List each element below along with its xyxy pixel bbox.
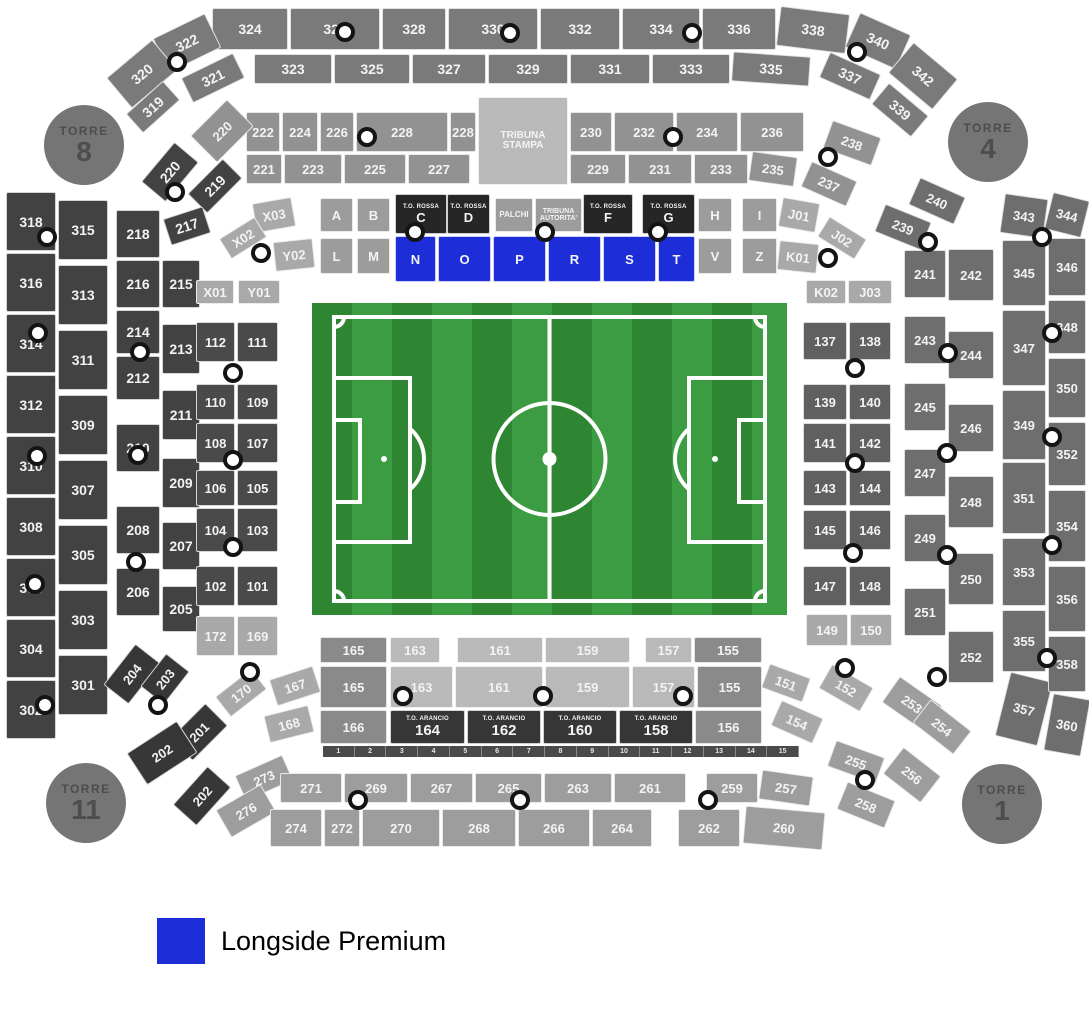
- section-152-label: 152: [833, 677, 858, 699]
- section-246-label: 246: [960, 422, 982, 435]
- section-357: 357: [995, 672, 1054, 747]
- section-314: 314: [6, 314, 56, 373]
- gate-marker: [251, 243, 271, 263]
- section-t[interactable]: T: [658, 236, 695, 282]
- section-270: 270: [362, 809, 440, 847]
- section-358-label: 358: [1056, 658, 1078, 671]
- section-254-label: 254: [929, 715, 954, 739]
- section-155-2-label: 155: [719, 681, 741, 694]
- torre-1-number: 1: [994, 797, 1010, 825]
- section-o[interactable]: O: [438, 236, 491, 282]
- gate-marker: [648, 222, 668, 242]
- row-number-cell: 13: [704, 746, 736, 757]
- row-number-cell: 5: [450, 746, 482, 757]
- section-139-label: 139: [814, 396, 836, 409]
- section-230-label: 230: [580, 126, 602, 139]
- section-339-label: 339: [887, 97, 914, 123]
- section-355-label: 355: [1013, 635, 1035, 648]
- section-261: 261: [614, 773, 686, 803]
- section-145: 145: [803, 510, 847, 550]
- section-162: T.O. ARANCIO162: [467, 710, 541, 744]
- section-h: H: [698, 198, 732, 232]
- section-259-label: 259: [721, 782, 743, 795]
- section-169: 169: [237, 616, 278, 656]
- section-235: 235: [748, 151, 798, 187]
- section-f: T.O. ROSSAF: [583, 194, 633, 234]
- section-209: 209: [162, 458, 200, 508]
- section-360-label: 360: [1055, 717, 1079, 734]
- section-155-2: 155: [697, 666, 762, 708]
- section-212-label: 212: [126, 371, 149, 385]
- section-219-label: 219: [202, 173, 228, 199]
- section-161-label: 161: [489, 644, 511, 657]
- section-157-2-label: 157: [653, 681, 675, 694]
- section-338: 338: [776, 6, 850, 54]
- section-220-label: 220: [210, 119, 235, 144]
- legend: Longside Premium: [157, 918, 446, 964]
- gate-marker: [937, 443, 957, 463]
- section-207: 207: [162, 522, 200, 570]
- section-221-label: 221: [253, 163, 275, 176]
- row-number-cell: 2: [355, 746, 387, 757]
- section-202-label: 202: [149, 742, 174, 765]
- row-number-cell: 12: [672, 746, 704, 757]
- section-216: 216: [116, 260, 160, 308]
- section-243-label: 243: [914, 334, 936, 347]
- section-338-label: 338: [801, 22, 826, 39]
- section-310: 310: [6, 436, 56, 495]
- section-332-label: 332: [568, 22, 591, 36]
- gate-marker: [223, 363, 243, 383]
- section-155: 155: [694, 637, 762, 663]
- gate-marker: [1042, 323, 1062, 343]
- section-208: 208: [116, 506, 160, 554]
- section-p[interactable]: P: [493, 236, 546, 282]
- section-305: 305: [58, 525, 108, 585]
- section-112: 112: [196, 322, 235, 362]
- section-321-label: 321: [199, 67, 226, 90]
- section-304-label: 304: [19, 642, 42, 656]
- section-169-label: 169: [247, 630, 269, 643]
- section-356-label: 356: [1056, 593, 1078, 606]
- section-107: 107: [237, 423, 278, 463]
- section-tribuna-stampa: TRIBUNA STAMPA: [478, 97, 568, 185]
- section-258-label: 258: [853, 795, 878, 815]
- section-x01: X01: [196, 280, 234, 304]
- row-number-cell: 6: [482, 746, 514, 757]
- section-267: 267: [410, 773, 473, 803]
- section-o-label: O: [459, 253, 469, 266]
- row-number-cell: 3: [386, 746, 418, 757]
- section-345-label: 345: [1013, 267, 1035, 280]
- gate-marker: [167, 52, 187, 72]
- section-256: 256: [883, 747, 942, 803]
- section-172: 172: [196, 616, 235, 656]
- section-106-label: 106: [205, 482, 227, 495]
- section-164: T.O. ARANCIO164: [390, 710, 465, 744]
- section-213-label: 213: [169, 342, 192, 356]
- section-a-label: A: [332, 209, 341, 222]
- gate-marker: [1042, 427, 1062, 447]
- section-137: 137: [803, 322, 847, 360]
- section-352-label: 352: [1056, 448, 1078, 461]
- gate-marker: [843, 543, 863, 563]
- section-143: 143: [803, 470, 847, 506]
- torre-4-number: 4: [980, 135, 996, 163]
- section-240-label: 240: [924, 191, 949, 212]
- section-s-label: S: [625, 253, 634, 266]
- row-number-cell: 1: [323, 746, 355, 757]
- section-226: 226: [320, 112, 354, 152]
- section-102: 102: [196, 566, 235, 606]
- gate-marker: [510, 790, 530, 810]
- section-267-label: 267: [431, 782, 453, 795]
- gate-marker: [682, 23, 702, 43]
- torre-8-number: 8: [76, 138, 92, 166]
- section-272-label: 272: [331, 822, 353, 835]
- section-264: 264: [592, 809, 652, 847]
- section-325-label: 325: [360, 62, 383, 76]
- section-y01-label: Y01: [247, 286, 270, 299]
- section-356: 356: [1048, 566, 1086, 632]
- section-z: Z: [742, 238, 777, 274]
- section-i: I: [742, 198, 777, 232]
- section-154-label: 154: [784, 712, 809, 733]
- section-r[interactable]: R: [548, 236, 601, 282]
- section-226-label: 226: [326, 126, 348, 139]
- section-j02-label: J02: [829, 227, 854, 250]
- section-336-label: 336: [727, 22, 750, 36]
- gate-marker: [938, 343, 958, 363]
- section-242: 242: [948, 249, 994, 301]
- section-110: 110: [196, 384, 235, 420]
- section-236: 236: [740, 112, 804, 152]
- section-151-label: 151: [774, 673, 799, 693]
- section-248: 248: [948, 476, 994, 528]
- section-220-2-label: 220: [157, 159, 183, 186]
- section-350: 350: [1048, 358, 1086, 418]
- section-149-label: 149: [816, 624, 838, 637]
- section-223-label: 223: [302, 163, 324, 176]
- section-235-label: 235: [761, 161, 784, 177]
- section-211: 211: [162, 390, 200, 440]
- gate-marker: [35, 695, 55, 715]
- section-j01-label: J01: [787, 207, 811, 224]
- section-263: 263: [544, 773, 612, 803]
- section-340-label: 340: [864, 30, 891, 52]
- section-327: 327: [412, 54, 486, 84]
- section-309: 309: [58, 395, 108, 455]
- section-316: 316: [6, 253, 56, 312]
- section-233: 233: [694, 154, 748, 184]
- gate-marker: [223, 450, 243, 470]
- section-y01: Y01: [238, 280, 280, 304]
- section-106: 106: [196, 470, 235, 506]
- section-241: 241: [904, 250, 946, 298]
- gate-marker: [918, 232, 938, 252]
- section-347-label: 347: [1013, 342, 1035, 355]
- section-y02: Y02: [273, 238, 316, 272]
- section-164-label: 164: [415, 723, 440, 738]
- section-349: 349: [1002, 390, 1046, 460]
- section-104-label: 104: [205, 524, 227, 537]
- gate-marker: [37, 227, 57, 247]
- section-139: 139: [803, 384, 847, 420]
- section-342-label: 342: [910, 63, 937, 89]
- section-f-label: F: [604, 211, 612, 224]
- section-260: 260: [742, 806, 825, 851]
- section-328: 328: [382, 8, 446, 50]
- section-148-label: 148: [859, 580, 881, 593]
- section-309-label: 309: [71, 418, 94, 432]
- section-244-label: 244: [960, 349, 982, 362]
- section-311: 311: [58, 330, 108, 390]
- section-225-label: 225: [364, 163, 386, 176]
- section-343-label: 343: [1012, 208, 1035, 224]
- section-144: 144: [849, 470, 891, 506]
- gate-marker: [393, 686, 413, 706]
- section-268: 268: [442, 809, 516, 847]
- section-214-label: 214: [126, 325, 149, 339]
- section-s[interactable]: S: [603, 236, 656, 282]
- section-213: 213: [162, 324, 200, 374]
- section-203-label: 203: [153, 666, 177, 691]
- section-349-label: 349: [1013, 419, 1035, 432]
- section-264-label: 264: [611, 822, 633, 835]
- section-251: 251: [904, 588, 946, 636]
- section-tribuna-autorita--label: TRIBUNA AUTORITA': [536, 208, 581, 222]
- section-233-label: 233: [710, 163, 732, 176]
- section-324: 324: [212, 8, 288, 50]
- gate-marker: [818, 147, 838, 167]
- section-307: 307: [58, 460, 108, 520]
- section-102-label: 102: [205, 580, 227, 593]
- gate-marker: [335, 22, 355, 42]
- section-105-label: 105: [247, 482, 269, 495]
- section-108-label: 108: [205, 437, 227, 450]
- section-111: 111: [237, 322, 278, 362]
- section-346-label: 346: [1056, 261, 1078, 274]
- section-354-label: 354: [1056, 520, 1078, 533]
- section-229-label: 229: [587, 163, 609, 176]
- section-337-label: 337: [836, 65, 863, 87]
- section-223: 223: [284, 154, 342, 184]
- section-g-label: G: [663, 211, 673, 224]
- section-palchi: PALCHI: [495, 198, 533, 232]
- section-158-label: 158: [643, 723, 668, 738]
- section-145-label: 145: [814, 524, 836, 537]
- section-163: 163: [390, 637, 440, 663]
- section-225: 225: [344, 154, 406, 184]
- section-248-label: 248: [960, 496, 982, 509]
- section-322-label: 322: [173, 32, 200, 55]
- section-301: 301: [58, 655, 108, 715]
- gate-marker: [845, 453, 865, 473]
- section-271-label: 271: [300, 782, 322, 795]
- section-x03-label: X03: [261, 207, 286, 224]
- section-n[interactable]: N: [395, 236, 436, 282]
- section-165-2-label: 165: [343, 681, 365, 694]
- section-m: M: [357, 238, 390, 274]
- section-327-label: 327: [437, 62, 460, 76]
- section-palchi-label: PALCHI: [499, 211, 528, 219]
- section-325: 325: [334, 54, 410, 84]
- section-312: 312: [6, 375, 56, 434]
- section-n-label: N: [411, 253, 420, 266]
- section-205-label: 205: [169, 602, 192, 616]
- section-144-label: 144: [859, 482, 881, 495]
- row-number-cell: 8: [545, 746, 577, 757]
- gate-marker: [126, 552, 146, 572]
- section-305-label: 305: [71, 548, 94, 562]
- section-159-2: 159: [545, 666, 630, 708]
- section-142-label: 142: [859, 437, 881, 450]
- section-270-label: 270: [390, 822, 412, 835]
- section-237: 237: [800, 161, 857, 207]
- section-351-label: 351: [1013, 492, 1035, 505]
- section-241-label: 241: [914, 268, 936, 281]
- section-161-2: 161: [455, 666, 543, 708]
- section-149: 149: [806, 614, 848, 646]
- section-219: 219: [187, 158, 242, 213]
- section-256-label: 256: [899, 763, 924, 787]
- section-263-label: 263: [567, 782, 589, 795]
- section-138: 138: [849, 322, 891, 360]
- section-329-label: 329: [516, 62, 539, 76]
- section-218-label: 218: [126, 227, 149, 241]
- section-221: 221: [246, 154, 282, 184]
- section-230: 230: [570, 112, 612, 152]
- section-333: 333: [652, 54, 730, 84]
- section-172-label: 172: [205, 630, 227, 643]
- gate-marker: [240, 662, 260, 682]
- section-155-label: 155: [717, 644, 739, 657]
- section-161-2-label: 161: [488, 681, 510, 694]
- section-159-2-label: 159: [577, 681, 599, 694]
- section-j03-label: J03: [859, 286, 881, 299]
- section-167: 167: [269, 666, 321, 707]
- section-150-label: 150: [860, 624, 882, 637]
- section-d: T.O. ROSSAD: [447, 194, 490, 234]
- section-262: 262: [678, 809, 740, 847]
- gate-marker: [27, 446, 47, 466]
- section-107-label: 107: [247, 437, 269, 450]
- section-112-label: 112: [205, 336, 226, 349]
- gate-marker: [937, 545, 957, 565]
- section-257-label: 257: [774, 780, 797, 796]
- section-206-label: 206: [126, 585, 149, 599]
- section-357-label: 357: [1012, 700, 1036, 718]
- section-318-label: 318: [19, 215, 42, 229]
- section-315-label: 315: [71, 223, 94, 237]
- section-217-label: 217: [174, 216, 201, 237]
- section-217: 217: [163, 206, 212, 246]
- section-212: 212: [116, 356, 160, 400]
- section-156: 156: [695, 710, 762, 744]
- section-y02-label: Y02: [282, 247, 306, 262]
- section-z-label: Z: [756, 250, 764, 263]
- section-157: 157: [645, 637, 692, 663]
- gate-marker: [223, 537, 243, 557]
- section-b: B: [357, 198, 390, 232]
- gate-marker: [663, 127, 683, 147]
- section-j01: J01: [778, 197, 821, 233]
- gate-marker: [165, 182, 185, 202]
- section-t-label: T: [673, 253, 681, 266]
- section-216-label: 216: [126, 277, 149, 291]
- section-228-2-label: 228: [452, 126, 474, 139]
- section-268-label: 268: [468, 822, 490, 835]
- torre-11-number: 11: [71, 796, 101, 824]
- section-303: 303: [58, 590, 108, 650]
- section-x01-label: X01: [203, 286, 226, 299]
- football-pitch: [312, 303, 787, 615]
- section-163-label: 163: [404, 644, 426, 657]
- section-335-label: 335: [759, 61, 783, 77]
- section-147: 147: [803, 566, 847, 606]
- gate-marker: [1037, 648, 1057, 668]
- gate-marker: [927, 667, 947, 687]
- section-266: 266: [518, 809, 590, 847]
- gate-marker: [405, 222, 425, 242]
- section-h-label: H: [710, 209, 719, 222]
- section-320-label: 320: [129, 61, 156, 87]
- section-148: 148: [849, 566, 891, 606]
- section-274: 274: [270, 809, 322, 847]
- gate-marker: [835, 658, 855, 678]
- gate-marker: [130, 342, 150, 362]
- gate-marker: [855, 770, 875, 790]
- section-140-label: 140: [859, 396, 881, 409]
- section-313-label: 313: [71, 288, 94, 302]
- gate-marker: [148, 695, 168, 715]
- section-l-label: L: [333, 250, 341, 263]
- section-103-label: 103: [247, 524, 269, 537]
- section-360: 360: [1043, 693, 1089, 757]
- section-311-label: 311: [72, 353, 95, 367]
- section-162-label: 162: [491, 723, 516, 738]
- legend-swatch: [157, 918, 205, 964]
- section-231-label: 231: [649, 163, 671, 176]
- section-167-label: 167: [283, 676, 308, 695]
- section-245-label: 245: [914, 401, 936, 414]
- section-265: 265: [475, 773, 542, 803]
- section-141-label: 141: [814, 437, 836, 450]
- section-335: 335: [731, 51, 811, 86]
- section-252: 252: [948, 631, 994, 683]
- section-168: 168: [263, 705, 314, 743]
- section-222-label: 222: [252, 126, 274, 139]
- section-228-label: 228: [391, 126, 413, 139]
- section-218: 218: [116, 210, 160, 258]
- section-331-label: 331: [598, 62, 621, 76]
- section-220: 220: [190, 99, 254, 163]
- section-156-label: 156: [718, 721, 740, 734]
- section-316-label: 316: [19, 276, 42, 290]
- section-351: 351: [1002, 462, 1046, 534]
- section-324-label: 324: [238, 22, 261, 36]
- section-323-label: 323: [281, 62, 304, 76]
- section-238-label: 238: [840, 133, 865, 153]
- section-308-label: 308: [19, 520, 42, 534]
- section-208-label: 208: [126, 523, 149, 537]
- section-170-label: 170: [228, 681, 253, 705]
- section-328-label: 328: [402, 22, 425, 36]
- section-261-label: 261: [639, 782, 661, 795]
- section-105: 105: [237, 470, 278, 506]
- section-227: 227: [408, 154, 470, 184]
- section-147-label: 147: [814, 580, 836, 593]
